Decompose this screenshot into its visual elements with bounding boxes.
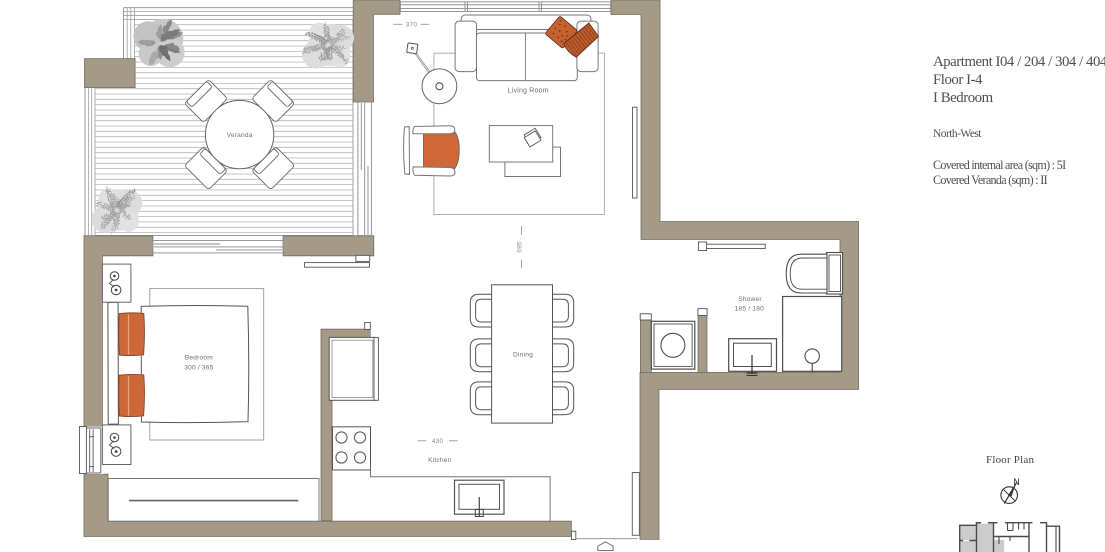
svg-text:Kitchen: Kitchen xyxy=(428,457,452,464)
svg-text:Dining: Dining xyxy=(513,352,533,359)
svg-text:695: 695 xyxy=(517,241,524,253)
svg-text:Living Room: Living Room xyxy=(508,87,549,94)
svg-text:Veranda: Veranda xyxy=(227,132,253,139)
svg-text:370: 370 xyxy=(406,22,418,29)
svg-text:Shower: Shower xyxy=(738,296,762,303)
svg-text:300 / 365: 300 / 365 xyxy=(184,364,213,371)
svg-text:Bedroom: Bedroom xyxy=(185,355,213,362)
svg-text:185 / 180: 185 / 180 xyxy=(735,306,764,313)
svg-text:430: 430 xyxy=(432,438,444,445)
svg-text:N: N xyxy=(1013,477,1019,487)
